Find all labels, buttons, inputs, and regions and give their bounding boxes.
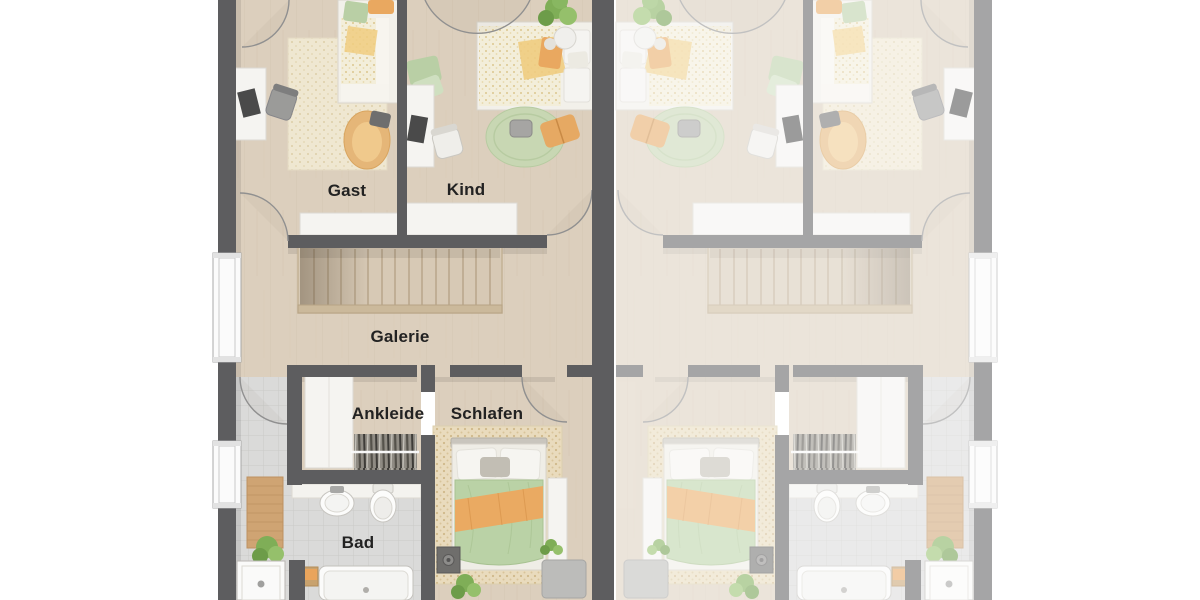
floor-plan-rendering: [0, 0, 1200, 600]
housing-unit-left: [213, 0, 594, 600]
housing-unit-right-mirrored: [616, 0, 997, 600]
floor-plan: Gast Kind Galerie Ankleide Schlafen Bad: [0, 0, 1200, 600]
party-wall: [592, 0, 614, 600]
